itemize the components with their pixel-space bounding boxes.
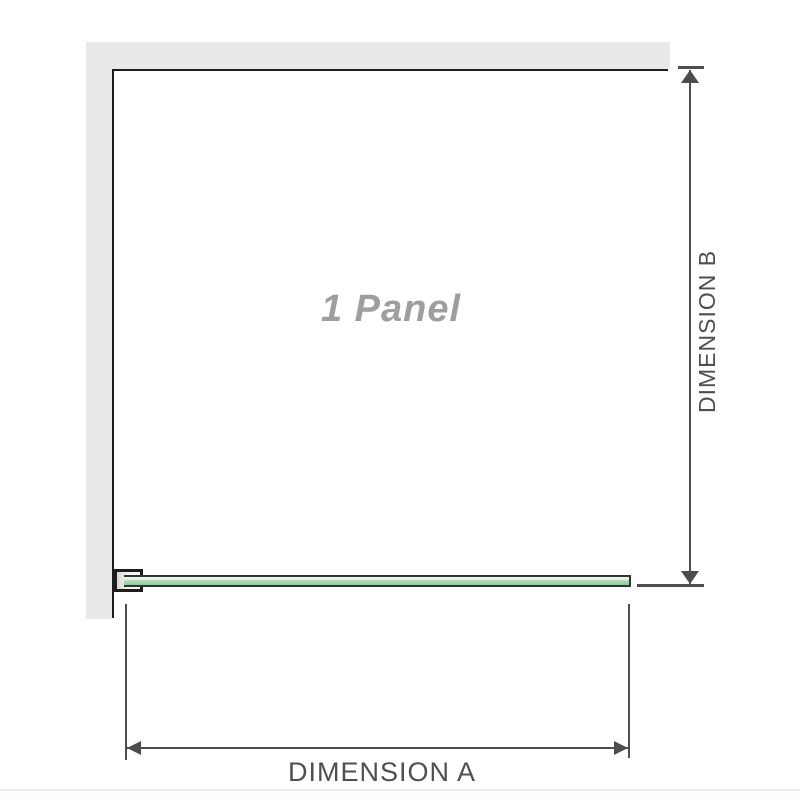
dimension-a-extension-left [125,604,127,760]
arrow-left-icon [127,741,141,755]
wall-side-bar [86,42,112,619]
arrow-right-icon [614,741,628,755]
arrow-up-icon [681,70,699,83]
dimension-b-line [689,70,691,584]
dimension-b-tick-top [678,66,704,69]
dimension-a-line [127,747,628,749]
panel-count-label: 1 Panel [114,288,668,331]
footer-divider [0,789,800,791]
dimension-a-extension-right [628,604,630,758]
panel-dimension-diagram: 1 Panel DIMENSION B DIMENSION A [0,0,800,800]
arrow-down-icon [681,571,699,584]
glass-panel-bar [124,575,631,587]
wall-top-bar [86,42,670,69]
dimension-b-tick-bottom [637,584,704,587]
panel-outline-top [112,69,668,71]
dimension-b-label: DIMENSION B [694,250,721,413]
dimension-a-label: DIMENSION A [182,757,582,788]
panel-outline-left [112,69,114,618]
